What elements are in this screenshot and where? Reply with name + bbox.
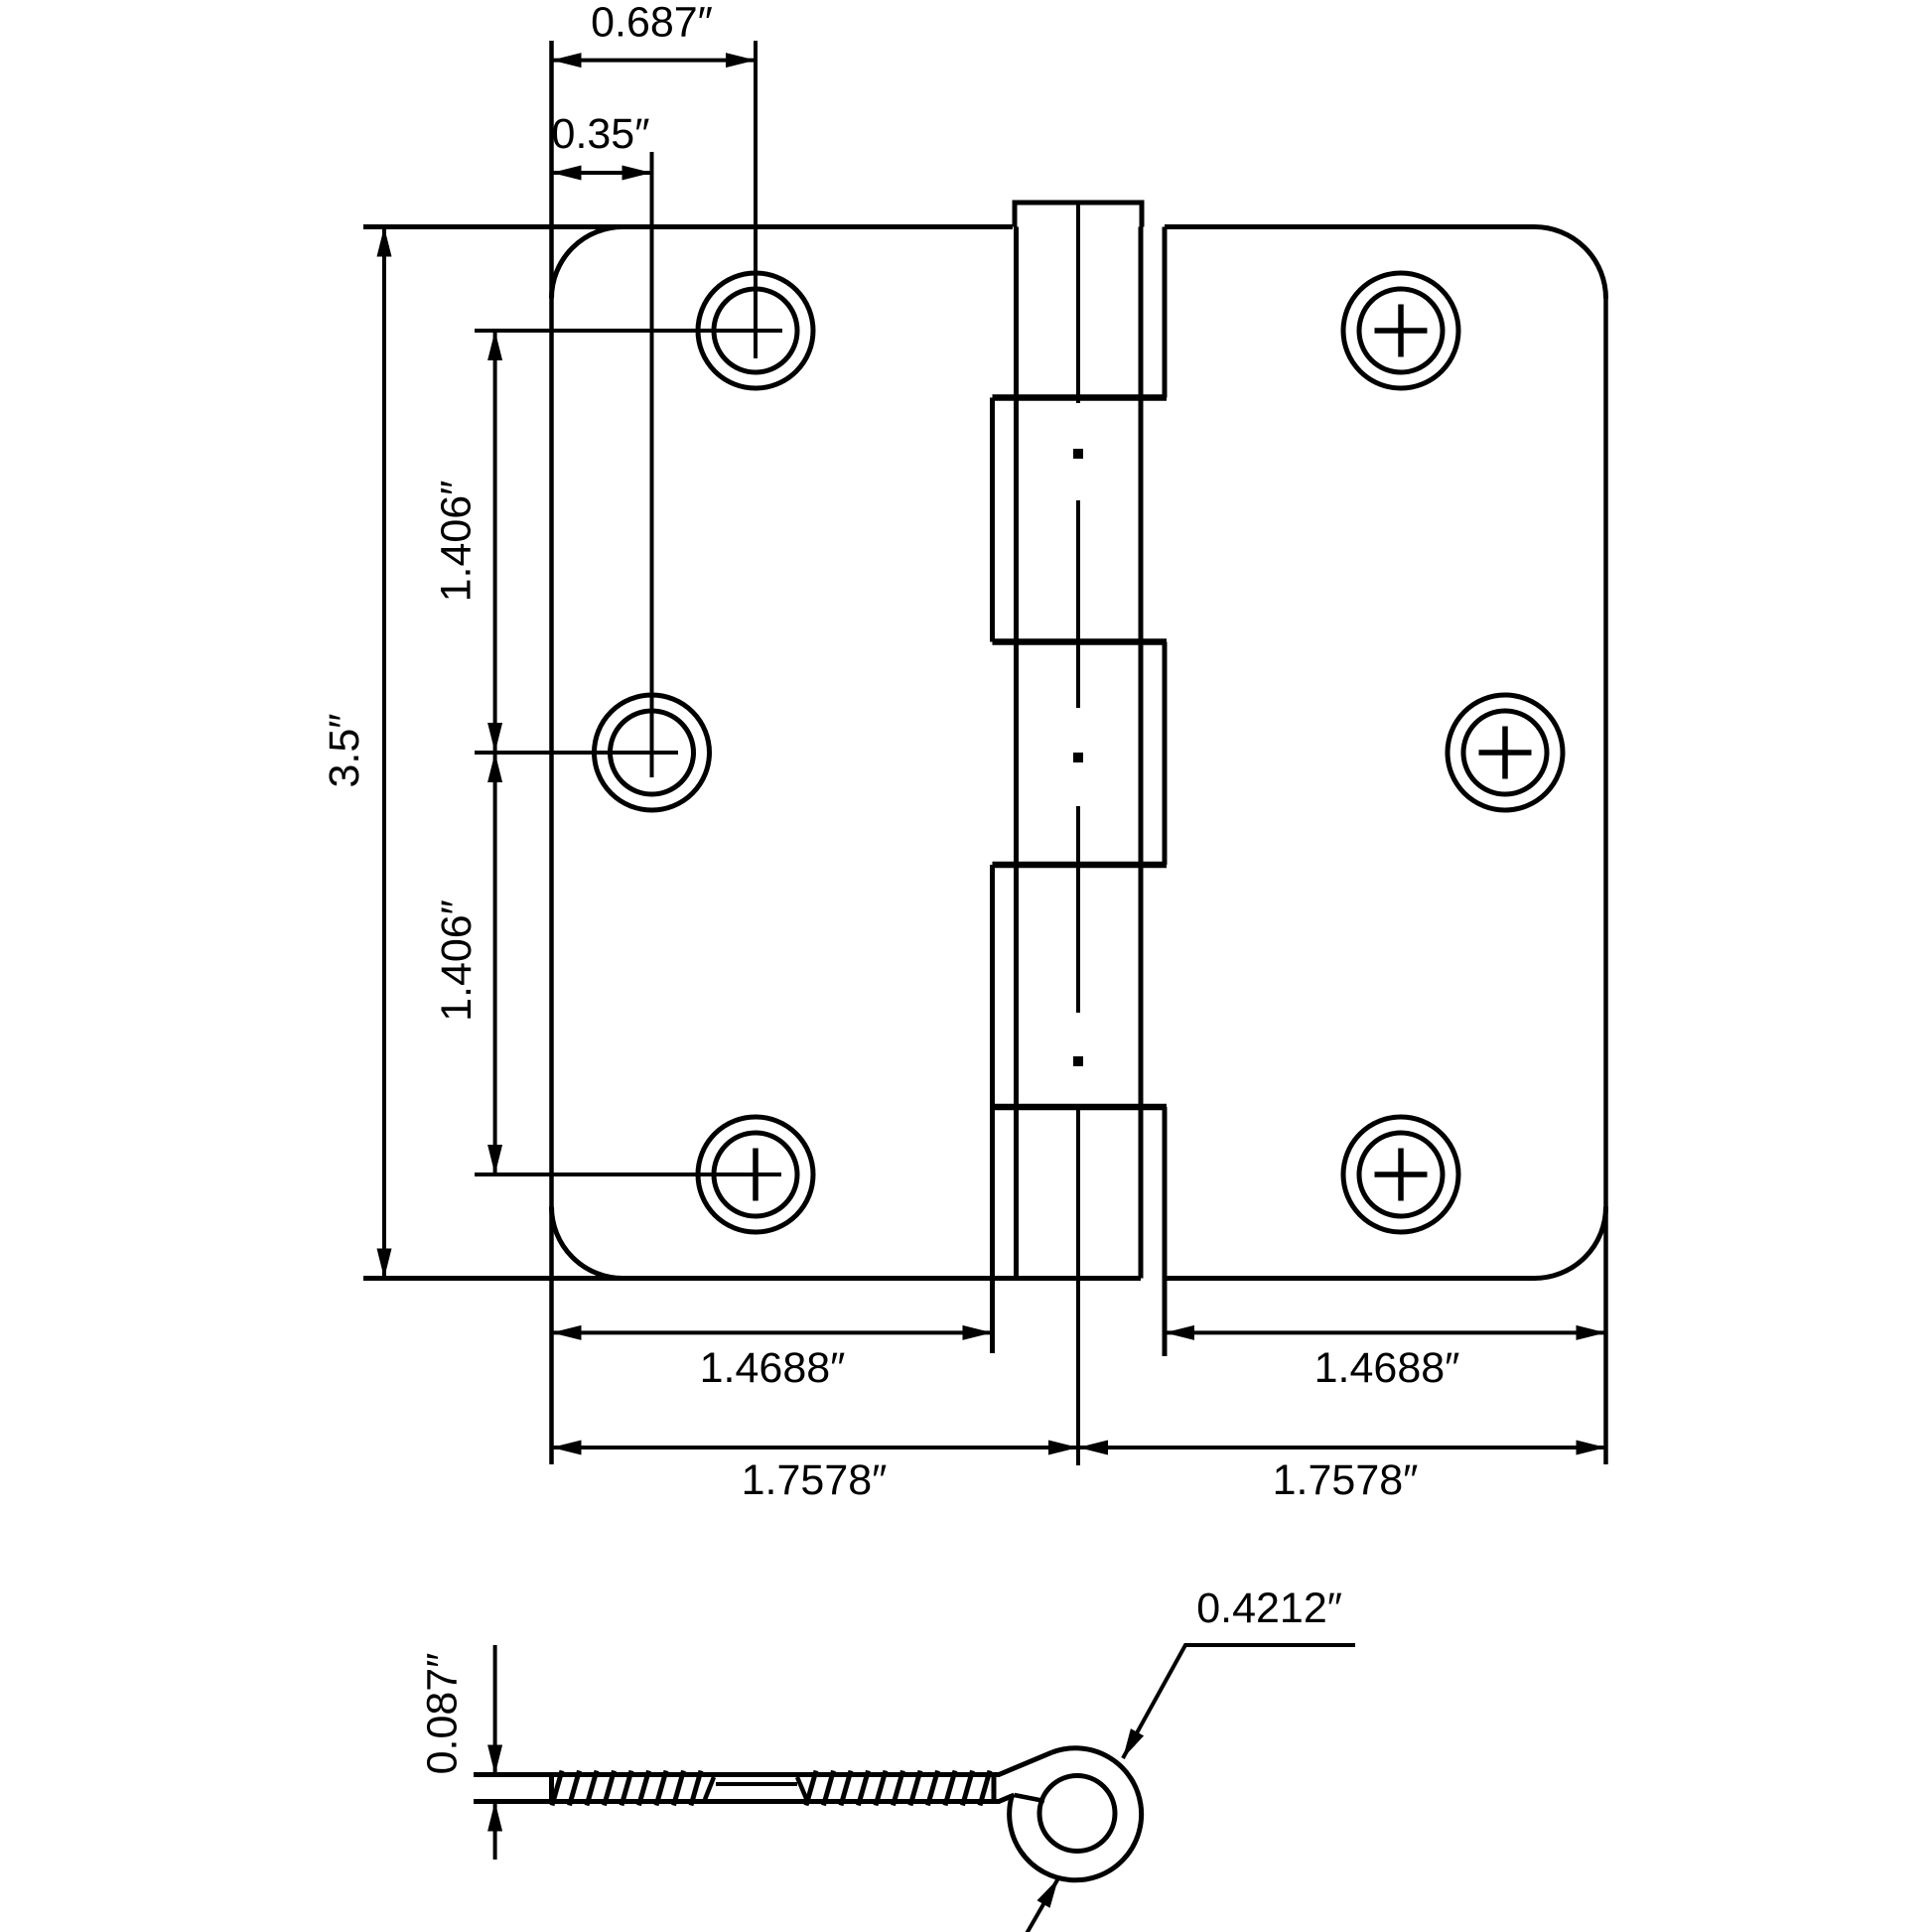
svg-text:0.4212″: 0.4212″ bbox=[1196, 1585, 1342, 1632]
svg-text:0.087″: 0.087″ bbox=[419, 1653, 467, 1775]
svg-text:1.7578″: 1.7578″ bbox=[742, 1456, 888, 1504]
svg-text:1.7578″: 1.7578″ bbox=[1273, 1456, 1419, 1504]
svg-text:1.406″: 1.406″ bbox=[433, 899, 481, 1022]
svg-text:1.4688″: 1.4688″ bbox=[700, 1344, 846, 1392]
svg-text:0.687″: 0.687″ bbox=[591, 0, 713, 47]
svg-text:0.35″: 0.35″ bbox=[552, 110, 650, 158]
svg-text:1.4688″: 1.4688″ bbox=[1314, 1344, 1460, 1392]
svg-text:1.406″: 1.406″ bbox=[433, 481, 481, 603]
svg-text:3.5″: 3.5″ bbox=[321, 714, 368, 788]
